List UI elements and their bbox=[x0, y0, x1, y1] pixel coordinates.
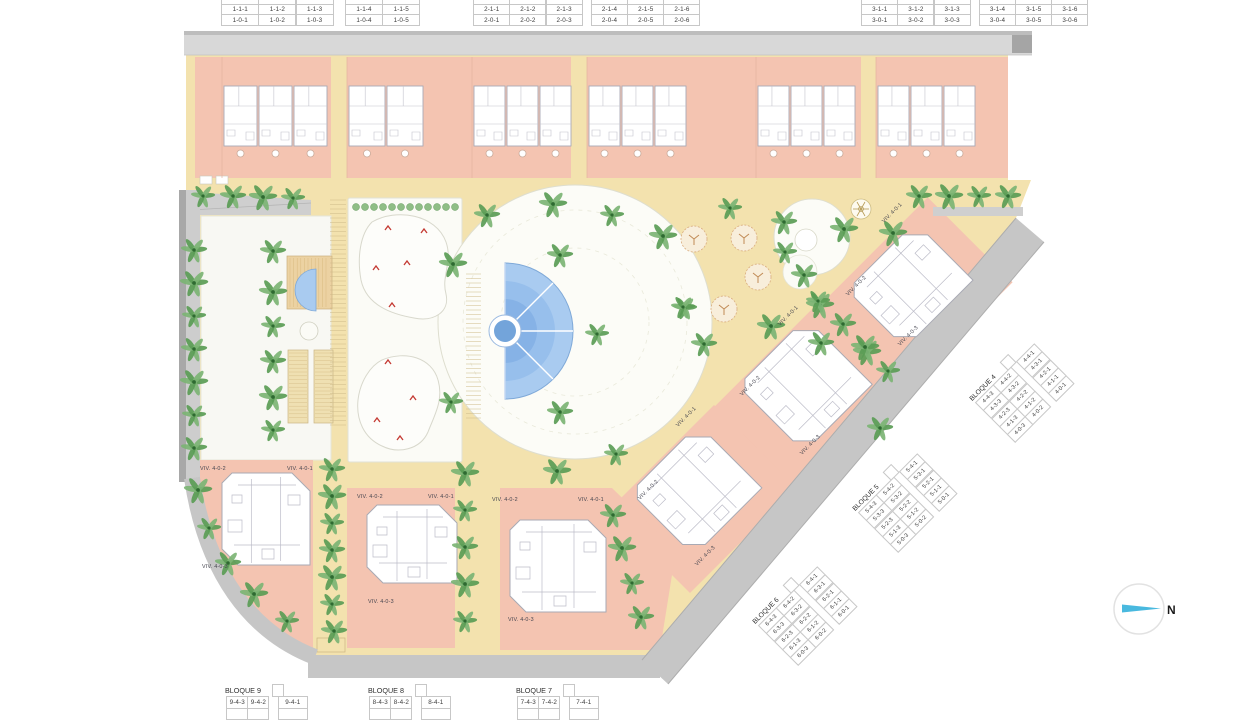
table-title: BLOQUE 7 bbox=[514, 684, 564, 697]
units-table-bloque-9: BLOQUE 99-4-39-4-29-4-1 bbox=[223, 684, 308, 720]
unit-cell: 1-0-2 bbox=[258, 14, 296, 26]
units-table-bloque-2: 2-2-12-2-22-2-32-2-42-2-52-2-62-1-12-1-2… bbox=[474, 0, 700, 26]
table-row-clipped bbox=[370, 708, 451, 720]
table-row: 1-0-11-0-21-0-31-0-41-0-5 bbox=[222, 14, 420, 26]
unit-cell bbox=[226, 708, 248, 720]
unit-cell: 9-4-2 bbox=[247, 696, 269, 709]
unit-cell bbox=[369, 708, 391, 720]
table-row: 8-4-38-4-28-4-1 bbox=[370, 696, 451, 709]
unit-cell: 2-0-5 bbox=[627, 14, 664, 26]
unit-cell: 9-4-1 bbox=[278, 696, 308, 709]
table-title: BLOQUE 9 bbox=[223, 684, 273, 697]
table-title: BLOQUE 8 bbox=[366, 684, 416, 697]
unit-cell: 1-0-4 bbox=[345, 14, 383, 26]
table-row: 7-4-37-4-27-4-1 bbox=[518, 696, 599, 709]
unit-cell bbox=[247, 708, 269, 720]
unit-cell: 3-0-3 bbox=[934, 14, 971, 26]
table-header-cell bbox=[415, 684, 427, 697]
units-table-bloque-3: 3-2-13-2-23-2-33-2-43-2-53-2-63-1-13-1-2… bbox=[862, 0, 1088, 26]
units-table-bloque-5: BLOQUE 55-4-35-4-25-4-15-3-35-3-25-3-15-… bbox=[848, 446, 957, 555]
table-gap-cell bbox=[333, 14, 346, 26]
unit-cell: 8-4-3 bbox=[369, 696, 391, 709]
table-header-row: BLOQUE 8 bbox=[366, 684, 451, 697]
unit-cell: 1-0-5 bbox=[382, 14, 420, 26]
unit-cell bbox=[569, 708, 599, 720]
unit-cell: 3-0-4 bbox=[979, 14, 1016, 26]
table-header-row: BLOQUE 7 bbox=[514, 684, 599, 697]
unit-cell: 7-4-2 bbox=[538, 696, 560, 709]
table-row-clipped bbox=[227, 708, 308, 720]
table-row: 9-4-39-4-29-4-1 bbox=[227, 696, 308, 709]
unit-cell: 3-0-2 bbox=[897, 14, 934, 26]
table-header-cell bbox=[563, 684, 575, 697]
units-table-bloque-6: BLOQUE 66-4-36-4-26-4-16-3-36-3-26-3-16-… bbox=[748, 559, 857, 668]
table-row: 3-0-13-0-23-0-33-0-43-0-53-0-6 bbox=[862, 14, 1088, 26]
unit-cell: 7-4-3 bbox=[517, 696, 539, 709]
units-table-bloque-7: BLOQUE 77-4-37-4-27-4-1 bbox=[514, 684, 599, 720]
units-table-bloque-1: 1-2-11-2-21-2-31-2-41-2-51-1-11-1-21-1-3… bbox=[222, 0, 420, 26]
unit-cell: 2-0-1 bbox=[473, 14, 510, 26]
unit-cell: 3-0-6 bbox=[1051, 14, 1088, 26]
units-table-bloque-4: BLOQUE 44-4-34-4-24-4-14-3-34-3-24-3-14-… bbox=[965, 336, 1074, 445]
unit-cell: 7-4-1 bbox=[569, 696, 599, 709]
unit-cell: 1-0-1 bbox=[221, 14, 259, 26]
units-table-bloque-8: BLOQUE 88-4-38-4-28-4-1 bbox=[366, 684, 451, 720]
unit-cell: 1-0-3 bbox=[296, 14, 334, 26]
unit-cell: 2-0-4 bbox=[591, 14, 628, 26]
unit-cell bbox=[517, 708, 539, 720]
unit-cell bbox=[390, 708, 412, 720]
table-header-cell bbox=[272, 684, 284, 697]
unit-cell: 3-0-1 bbox=[861, 14, 898, 26]
unit-cell bbox=[278, 708, 308, 720]
unit-cell: 8-4-2 bbox=[390, 696, 412, 709]
unit-cell: 3-0-5 bbox=[1015, 14, 1052, 26]
unit-cell: 2-0-3 bbox=[546, 14, 583, 26]
unit-cell bbox=[421, 708, 451, 720]
unit-tables-layer: 1-2-11-2-21-2-31-2-41-2-51-1-11-1-21-1-3… bbox=[0, 0, 1240, 720]
unit-cell bbox=[538, 708, 560, 720]
site-plan-page: { "north": { "label": "N" }, "colors": {… bbox=[0, 0, 1240, 720]
table-row: 2-0-12-0-22-0-32-0-42-0-52-0-6 bbox=[474, 14, 700, 26]
unit-cell: 8-4-1 bbox=[421, 696, 451, 709]
unit-cell: 2-0-2 bbox=[509, 14, 546, 26]
unit-cell: 9-4-3 bbox=[226, 696, 248, 709]
unit-cell: 2-0-6 bbox=[663, 14, 700, 26]
table-header-row: BLOQUE 9 bbox=[223, 684, 308, 697]
table-row-clipped bbox=[518, 708, 599, 720]
